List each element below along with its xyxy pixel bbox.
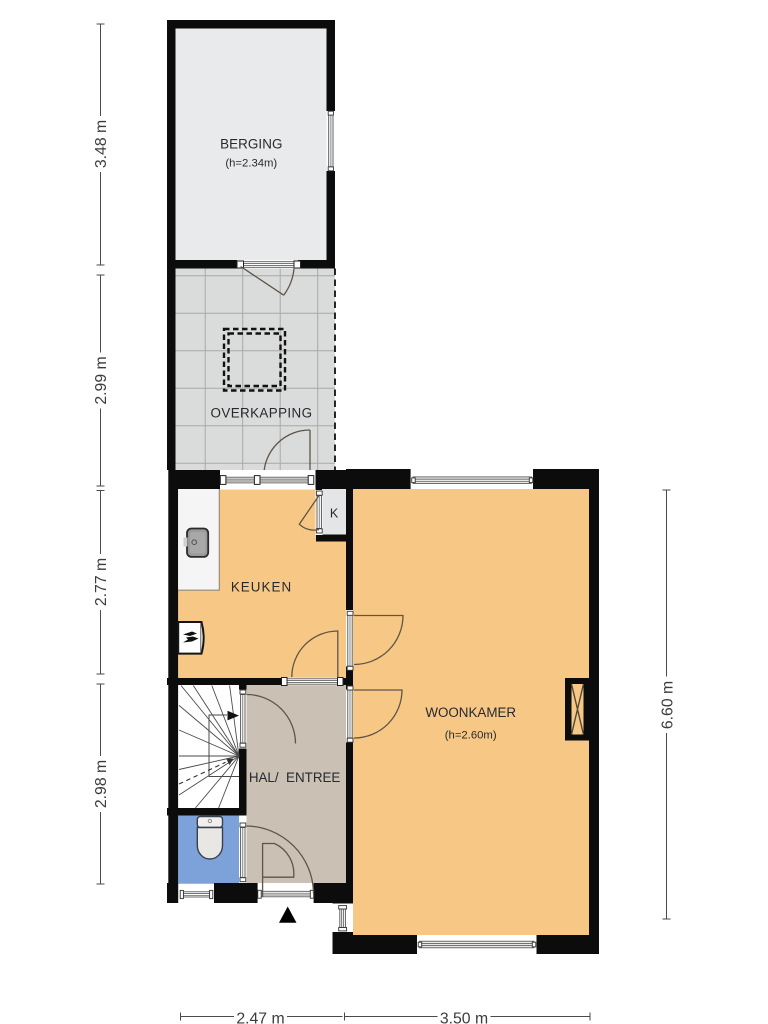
svg-text:(h=2.34m): (h=2.34m) xyxy=(225,158,277,170)
svg-text:2.77 m: 2.77 m xyxy=(93,558,110,606)
svg-text:OVERKAPPING: OVERKAPPING xyxy=(211,406,313,421)
svg-text:3.50 m: 3.50 m xyxy=(440,1011,488,1024)
svg-text:2.47 m: 2.47 m xyxy=(236,1011,284,1024)
svg-text:KEUKEN: KEUKEN xyxy=(231,580,292,595)
svg-text:2.99 m: 2.99 m xyxy=(93,356,110,404)
svg-text:2.98 m: 2.98 m xyxy=(93,760,110,808)
svg-text:(h=2.60m): (h=2.60m) xyxy=(445,730,497,742)
svg-text:WOONKAMER: WOONKAMER xyxy=(425,705,516,720)
svg-text:BERGING: BERGING xyxy=(220,137,282,152)
svg-text:3.48 m: 3.48 m xyxy=(93,120,110,168)
svg-text:HAL/ ENTREE: HAL/ ENTREE xyxy=(249,770,341,785)
svg-text:K: K xyxy=(330,507,339,521)
svg-text:6.60 m: 6.60 m xyxy=(659,681,676,729)
